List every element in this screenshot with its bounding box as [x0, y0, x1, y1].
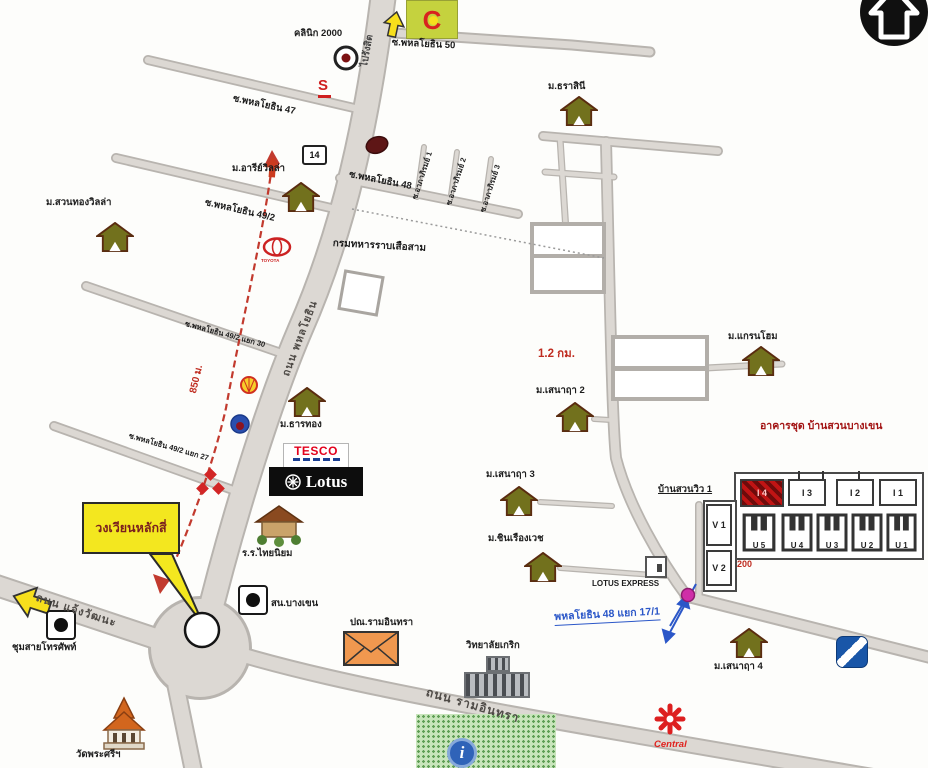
distance-200: 200 [737, 560, 752, 570]
lotus-wordmark: Lotus [306, 472, 348, 492]
village-label: ม.ชินเรืองเวช [488, 534, 544, 544]
house-icon [730, 628, 768, 658]
road-network [0, 0, 928, 768]
building-label: U 5 [741, 541, 777, 550]
distance-1-2km: 1.2 กม. [538, 348, 575, 361]
tesco-sign: TESCO [283, 443, 349, 469]
big-c-letter: C [423, 7, 442, 33]
building-i1: I 1 [879, 479, 917, 506]
sign-14-text: 14 [309, 150, 319, 160]
building-label: I 3 [802, 488, 812, 498]
building-u5: U 5 [741, 512, 777, 553]
junction-dot [682, 589, 695, 602]
clinic-bullseye-icon [335, 47, 357, 69]
post-office-envelope-icon [344, 632, 398, 665]
vent-tick [798, 471, 800, 479]
krirk-college-icon [464, 672, 530, 698]
village-label: ม.ธารทอง [280, 420, 322, 430]
central-logo-icon [657, 706, 683, 732]
house-icon [560, 96, 598, 126]
vent-tick [822, 471, 824, 479]
building-u3: U 3 [815, 512, 849, 553]
clinic-2000-label: คลินิก 2000 [294, 29, 342, 39]
building-label: U 1 [885, 541, 918, 550]
toyota-wordmark: TOYOTA [261, 258, 279, 263]
central-wordmark: Central [654, 740, 687, 750]
lotus-express-icon [645, 556, 667, 578]
temple-icon [104, 698, 144, 749]
building-i3: I 3 [788, 479, 826, 506]
house-icon [282, 182, 320, 212]
tesco-wordmark: TESCO [284, 444, 348, 458]
building-label: U 2 [850, 541, 884, 550]
building-label: U 4 [780, 541, 814, 550]
baan-suan-view-label: บ้านสวนวิว 1 [658, 485, 712, 495]
thai-niyom-school-label: ร.ร.ไทยนิยม [242, 549, 292, 559]
shell-logo-icon [241, 377, 257, 393]
map-canvas: I 4 I 3 I 2 I 1 V 1 V 2 U 5 U 4 U 3 U 2 … [0, 0, 928, 768]
village-label: ม.อารีย์วิลล่า [232, 164, 285, 174]
lotus-sign: Lotus [269, 467, 363, 496]
house-icon [288, 387, 326, 417]
callout-text: วงเวียนหลักสี่ [95, 518, 166, 538]
blue-fuel-logo-icon [231, 415, 249, 433]
sign-14-icon: 14 [302, 145, 327, 165]
building-label: V 1 [712, 520, 726, 530]
building-label: I 4 [757, 488, 767, 498]
lotus-express-label: LOTUS EXPRESS [592, 580, 659, 589]
building-u2: U 2 [850, 512, 884, 553]
house-icon [500, 486, 538, 516]
blue-diagonal-logo-icon [836, 636, 868, 668]
toyota-logo-icon [264, 239, 290, 256]
house-icon [96, 222, 134, 252]
building-i4: I 4 [740, 479, 784, 507]
telephone-exchange-label: ชุมสายโทรศัพท์ [12, 643, 76, 653]
info-letter: i [460, 743, 465, 763]
building-label: V 2 [712, 563, 726, 573]
building-u1: U 1 [885, 512, 918, 553]
wat-phra-si-label: วัดพระศรีฯ [76, 750, 120, 760]
condo-title: อาคารชุด บ้านสวนบางเขน [760, 421, 882, 433]
lotus-flower-icon [285, 474, 301, 490]
tesco-dashes [284, 458, 348, 461]
park-area [416, 714, 556, 768]
bangkhen-police-label: สน.บางเขน [271, 599, 318, 609]
village-label: ม.แกรนโฮม [728, 332, 778, 342]
big-c-logo: C [406, 0, 458, 39]
village-label: ม.เสนาฤา 4 [714, 662, 763, 672]
house-icon [524, 552, 562, 582]
building-v1: V 1 [706, 504, 732, 546]
building-label: I 1 [893, 488, 903, 498]
thai-niyom-school-icon [256, 506, 302, 547]
house-icon [742, 346, 780, 376]
police-station-icon [238, 585, 268, 615]
suzuki-logo-icon: S [318, 78, 331, 98]
building-v2: V 2 [706, 550, 732, 586]
information-icon: i [447, 738, 477, 768]
lak-si-roundabout-callout: วงเวียนหลักสี่ [82, 502, 180, 554]
krirk-college-label: วิทยาลัยเกริก [466, 641, 520, 651]
village-label: ม.เสนาฤา 3 [486, 470, 535, 480]
village-label: ม.สวนทองวิลล่า [46, 198, 111, 208]
krirk-college-icon-top [486, 656, 510, 672]
building-i2: I 2 [836, 479, 874, 506]
building-label: U 3 [815, 541, 849, 550]
village-label: ม.ธราสินี [548, 82, 585, 92]
post-office-label: ปณ.รามอินทรา [350, 618, 413, 628]
village-label: ม.เสนาฤา 2 [536, 386, 585, 396]
home-button[interactable] [860, 0, 928, 46]
roundabout-circle [185, 613, 219, 647]
suzuki-letter: S [318, 77, 328, 94]
vent-tick [858, 471, 860, 479]
building-u4: U 4 [780, 512, 814, 553]
house-icon [556, 402, 594, 432]
building-label: I 2 [850, 488, 860, 498]
